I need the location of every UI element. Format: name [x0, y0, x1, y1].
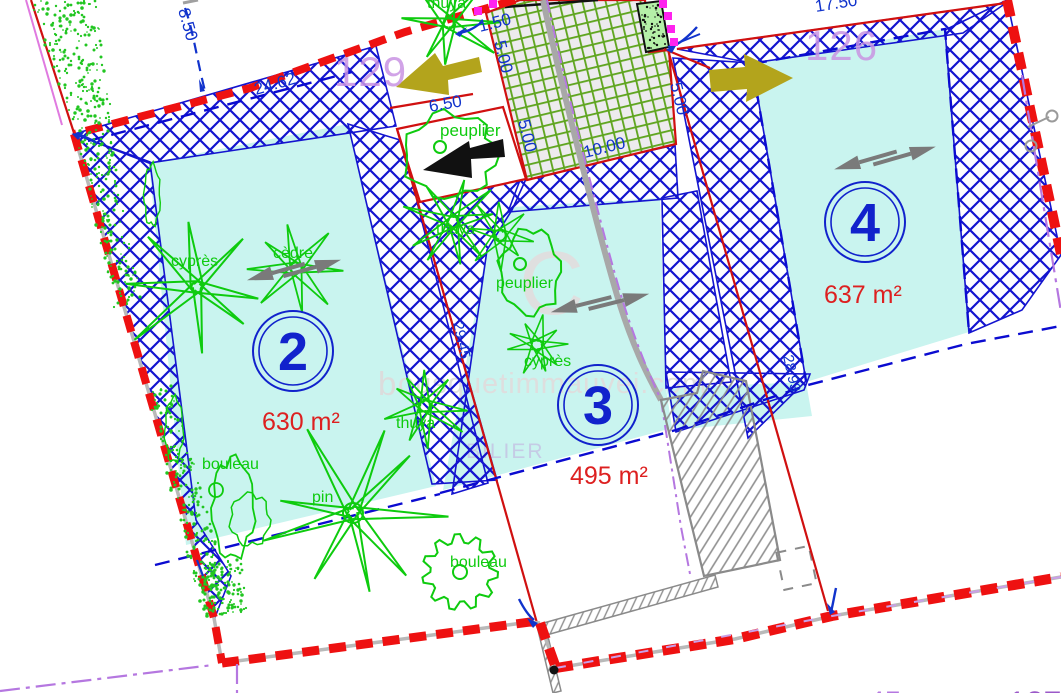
svg-text:peuplier: peuplier [496, 275, 554, 292]
svg-text:126: 126 [805, 22, 878, 69]
svg-text:4: 4 [850, 193, 880, 253]
svg-text:3: 3 [583, 376, 613, 436]
svg-text:129: 129 [334, 48, 407, 95]
svg-text:cyprès: cyprès [171, 253, 218, 270]
svg-text:b: b [378, 365, 397, 402]
svg-text:bouleau: bouleau [202, 456, 259, 473]
svg-text:peuplier: peuplier [440, 121, 501, 140]
svg-text:thuya: thuya [427, 0, 466, 12]
svg-text:pin: pin [312, 489, 333, 506]
svg-text:bouleau: bouleau [450, 554, 507, 571]
svg-text:thuya: thuya [436, 221, 475, 238]
svg-text:45: 45 [868, 686, 901, 693]
svg-text:2: 2 [278, 322, 308, 382]
svg-text:127: 127 [1008, 685, 1061, 693]
svg-text:thuya: thuya [396, 415, 435, 432]
svg-text:630 m²: 630 m² [262, 408, 340, 436]
svg-text:637 m²: 637 m² [824, 281, 902, 309]
svg-text:495 m²: 495 m² [570, 462, 648, 490]
svg-text:cèdre: cèdre [273, 245, 313, 262]
svg-text:cyprès: cyprès [524, 353, 571, 370]
